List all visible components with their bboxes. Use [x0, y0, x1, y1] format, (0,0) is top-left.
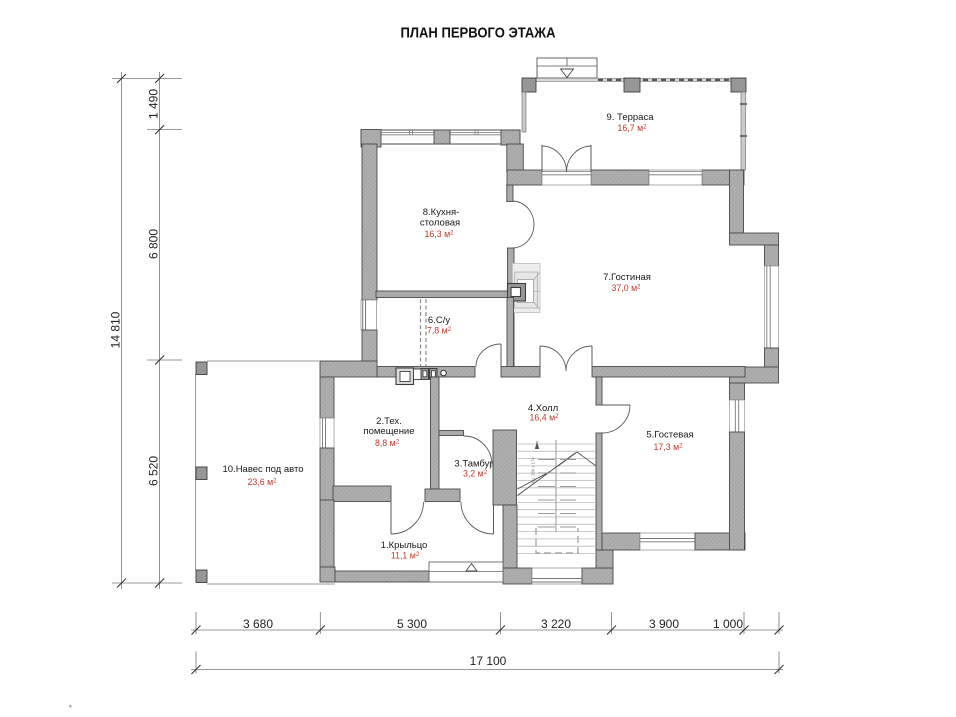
svg-text:7.Гостиная: 7.Гостиная	[603, 272, 651, 283]
svg-text:3 900: 3 900	[649, 617, 679, 631]
svg-text:3 680: 3 680	[243, 617, 273, 631]
svg-text:помещение: помещение	[363, 426, 414, 437]
svg-text:14 810: 14 810	[109, 311, 123, 348]
svg-text:3 220: 3 220	[541, 617, 571, 631]
svg-text:8.Кухня-: 8.Кухня-	[423, 207, 460, 218]
svg-text:6.С/у: 6.С/у	[428, 315, 450, 326]
svg-text:6 800: 6 800	[147, 229, 161, 259]
svg-text:ПЛАН ПЕРВОГО ЭТАЖА: ПЛАН ПЕРВОГО ЭТАЖА	[401, 25, 556, 42]
svg-text:16,3 м2: 16,3 м2	[425, 229, 455, 239]
svg-text:16,7 м2: 16,7 м2	[618, 123, 648, 133]
svg-text:8,8 м2: 8,8 м2	[375, 438, 400, 448]
svg-text:11,1 м2: 11,1 м2	[391, 551, 420, 561]
svg-text:7,8 м2: 7,8 м2	[427, 326, 452, 336]
svg-text:23,6 м2: 23,6 м2	[248, 477, 278, 487]
svg-text:3,2 м2: 3,2 м2	[463, 469, 488, 479]
svg-text:10.Навес под авто: 10.Навес под авто	[222, 464, 303, 475]
svg-text:17 100: 17 100	[470, 654, 507, 668]
svg-text:5 300: 5 300	[397, 617, 427, 631]
svg-text:1.Крыльцо: 1.Крыльцо	[381, 540, 428, 551]
svg-text:6 520: 6 520	[147, 456, 161, 486]
svg-text:9. Терраса: 9. Терраса	[607, 112, 655, 123]
svg-text:1 490: 1 490	[147, 89, 161, 119]
svg-text:16,4 м2: 16,4 м2	[530, 413, 560, 423]
svg-text:37,0 м2: 37,0 м2	[612, 283, 642, 293]
svg-text:поз. 280 х 174: поз. 280 х 174	[531, 457, 536, 485]
svg-text:1 000: 1 000	[713, 617, 743, 631]
svg-text:5.Гостевая: 5.Гостевая	[646, 430, 693, 441]
svg-text:17,3 м2: 17,3 м2	[654, 442, 684, 452]
svg-text:столовая: столовая	[420, 218, 460, 229]
